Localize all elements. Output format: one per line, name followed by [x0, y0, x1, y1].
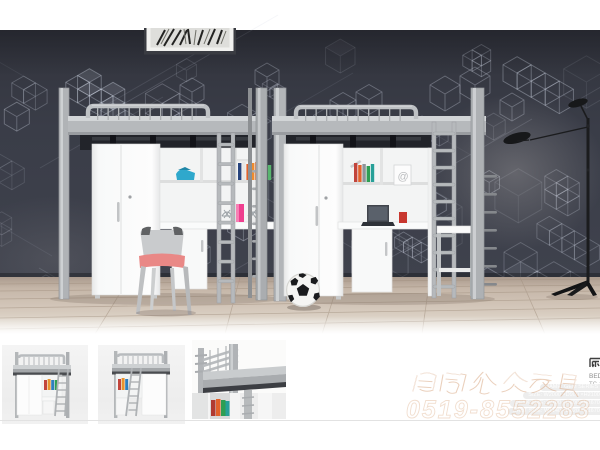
svg-text:@: @	[398, 171, 409, 183]
